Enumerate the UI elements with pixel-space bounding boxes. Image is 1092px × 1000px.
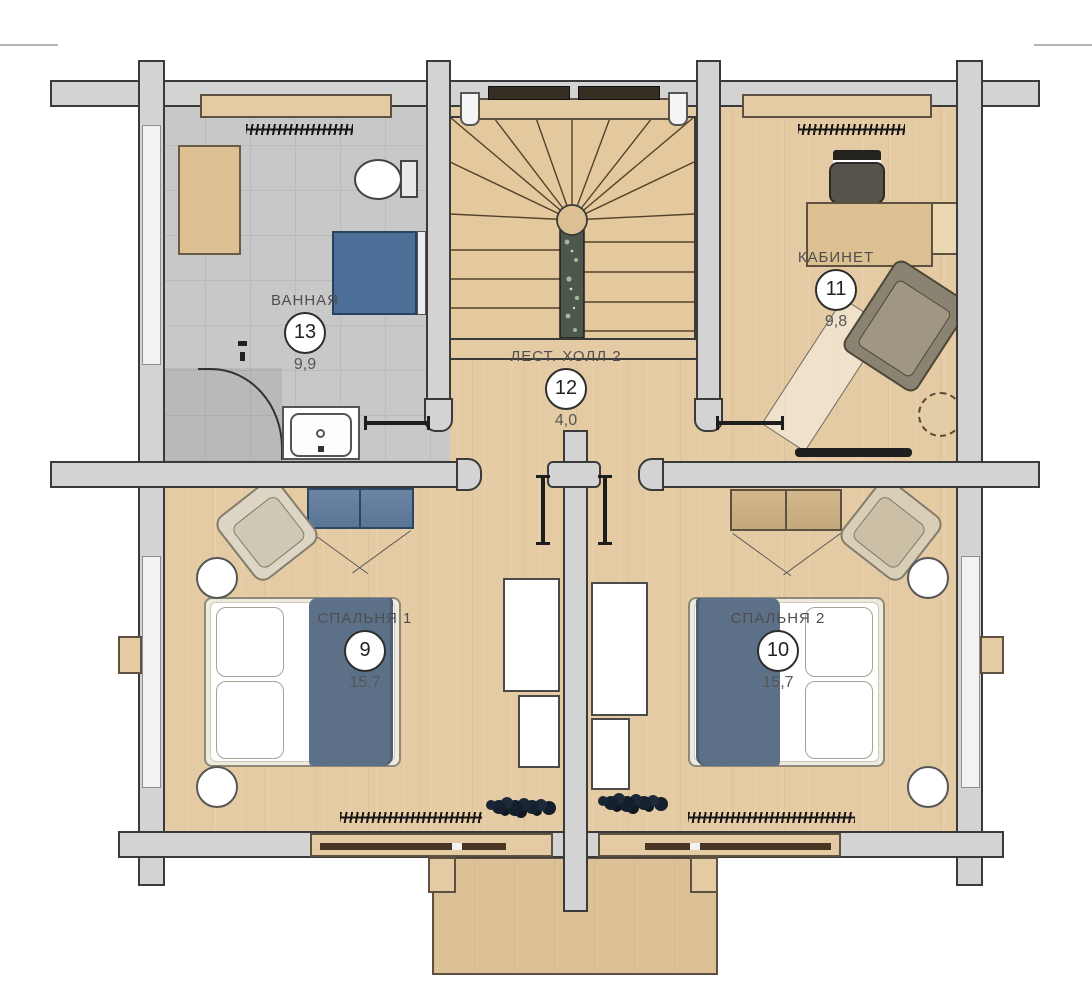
room-name: ВАННАЯ	[230, 292, 380, 310]
balcony-door-left-glass	[320, 843, 506, 850]
balcony-door-right-glass	[645, 843, 831, 850]
room-area: 4,0	[491, 412, 641, 430]
room-number-badge: 10	[757, 630, 799, 672]
room-name: СПАЛЬНЯ 1	[290, 610, 440, 628]
room-area: 9,9	[230, 356, 380, 374]
nightstand	[907, 557, 949, 599]
wall-center-hub	[547, 461, 601, 488]
window-sill-stairs	[478, 98, 670, 120]
window-sill-office	[742, 94, 932, 118]
log-stub-right	[980, 636, 1004, 674]
pillow	[216, 681, 284, 759]
pillow	[216, 607, 284, 677]
stair-newel-post	[557, 205, 587, 235]
room-number-badge: 11	[815, 269, 857, 311]
room-number-badge: 9	[344, 630, 386, 672]
room-label-office: КАБИНЕТ 11 9,8	[761, 249, 911, 331]
towel-radiator-office	[798, 124, 905, 135]
window-pane-stairs-right	[578, 86, 660, 100]
sink-drain	[318, 446, 324, 452]
staircase	[448, 116, 696, 340]
wall-middle-left	[50, 461, 462, 488]
balcony-post-left	[428, 857, 456, 893]
towel-radiator-bathroom	[246, 124, 353, 135]
room-name: ЛЕСТ. ХОЛЛ 2	[491, 348, 641, 366]
room-area: 15,7	[290, 674, 440, 692]
balcony-door-right-handle	[690, 843, 700, 850]
wall-middle-right	[662, 461, 1040, 488]
plant-bedroom1	[486, 800, 496, 810]
room-label-bathroom: ВАННАЯ 13 9,9	[230, 292, 380, 374]
room-name: СПАЛЬНЯ 2	[703, 610, 853, 628]
wardrobe-bedroom1-b	[518, 695, 560, 768]
room-area: 15,7	[703, 674, 853, 692]
bedroom2-door	[603, 477, 607, 543]
floor-plan-page: { "rooms": { "bathroom": { "label": "ВАН…	[0, 0, 1092, 1000]
wall-center-partition	[563, 430, 588, 912]
nightstand	[196, 557, 238, 599]
bathroom-bench	[178, 145, 241, 255]
room-area: 9,8	[761, 313, 911, 331]
wall-stairwell-right	[696, 60, 721, 402]
radiator-bedroom1	[340, 812, 482, 823]
desk-chair	[829, 162, 885, 204]
window-jamb-left	[460, 92, 480, 126]
room-label-bedroom2: СПАЛЬНЯ 2 10 15,7	[703, 610, 853, 692]
window-bedroom2-right	[961, 556, 980, 788]
window-bedroom1-left	[142, 556, 161, 788]
toilet-tank	[400, 160, 418, 198]
bathtub-ledge	[417, 231, 426, 315]
sink-faucet	[316, 429, 325, 438]
wardrobe-bedroom2-a	[591, 582, 648, 716]
dresser-bedroom1-divider	[359, 489, 361, 528]
room-label-stair-hall: ЛЕСТ. ХОЛЛ 2 12 4,0	[491, 348, 641, 430]
balcony-post-right	[690, 857, 718, 893]
wall-bottom	[118, 831, 1004, 858]
roof-line-fragment	[0, 44, 58, 46]
room-number-badge: 12	[545, 368, 587, 410]
office-door	[718, 421, 782, 425]
wardrobe-bedroom2-b	[591, 718, 630, 790]
window-pane-stairs-left	[488, 86, 570, 100]
wall-stairwell-left	[426, 60, 451, 402]
roof-line-fragment	[1034, 44, 1092, 46]
plant-bedroom2	[598, 796, 608, 806]
radiator-bedroom2	[688, 812, 855, 823]
log-stub-left	[118, 636, 142, 674]
room-name: КАБИНЕТ	[761, 249, 911, 267]
room-number-badge: 13	[284, 312, 326, 354]
nightstand	[196, 766, 238, 808]
office-doormat	[795, 448, 912, 457]
wall-end-cap-middle-left	[456, 458, 482, 491]
nightstand	[907, 766, 949, 808]
wardrobe-bedroom1-a	[503, 578, 560, 692]
balcony-door-left-handle	[452, 843, 462, 850]
window-jamb-right	[668, 92, 688, 126]
toilet-bowl	[354, 159, 402, 200]
bedroom1-door	[541, 477, 545, 543]
window-sill-bathroom	[200, 94, 392, 118]
bathroom-door	[366, 421, 428, 425]
pillow	[805, 681, 873, 759]
dresser-bedroom2-divider	[785, 490, 787, 530]
room-label-bedroom1: СПАЛЬНЯ 1 9 15,7	[290, 610, 440, 692]
window-bathroom-left	[142, 125, 161, 365]
wall-end-cap-middle-right	[638, 458, 664, 491]
